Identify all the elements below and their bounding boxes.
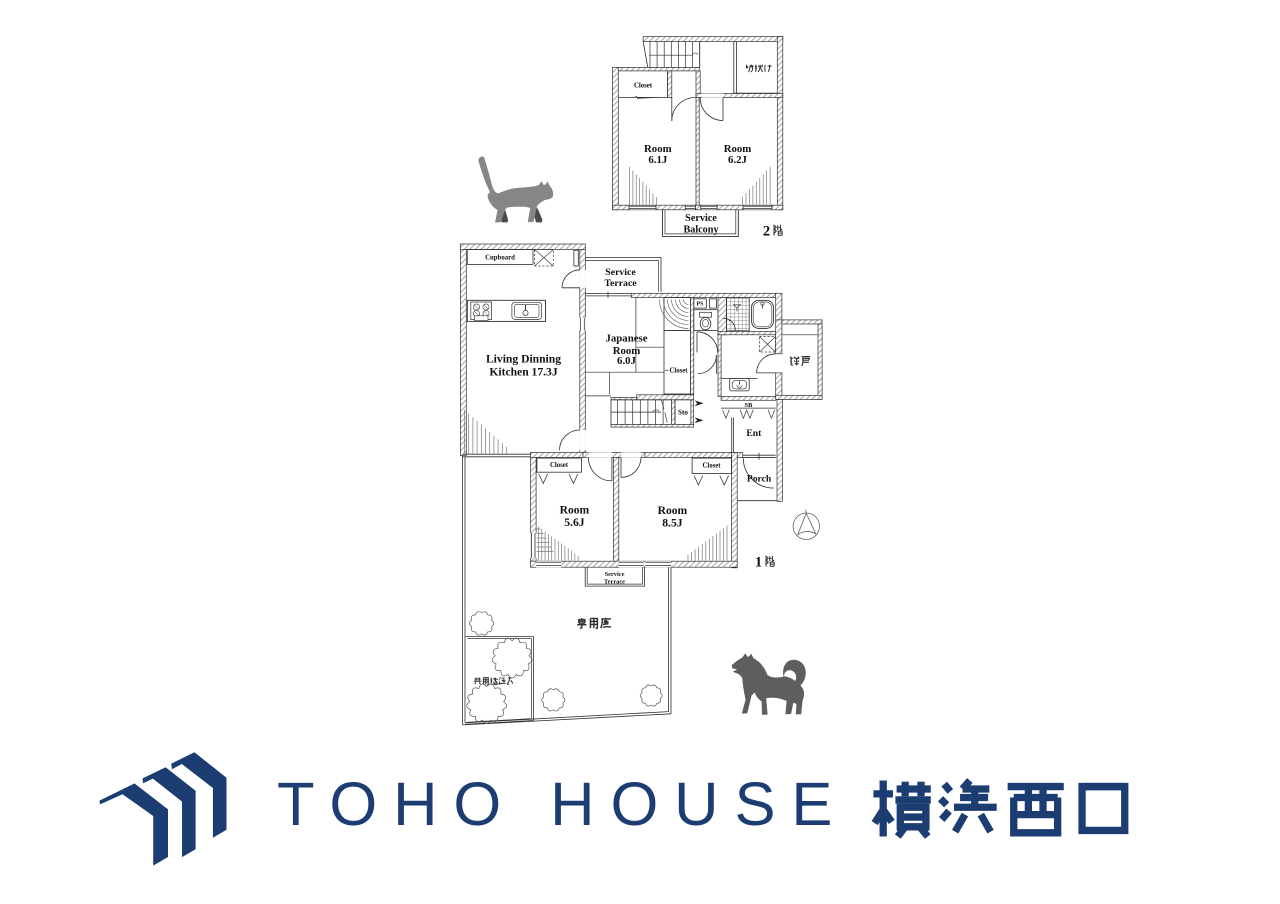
svg-text:TOHO HOUSE: TOHO HOUSE — [277, 770, 848, 839]
svg-text:8.5J: 8.5J — [662, 516, 682, 529]
svg-text:Ent: Ent — [746, 428, 762, 439]
svg-text:Balcony: Balcony — [683, 225, 718, 236]
svg-text:Room: Room — [560, 504, 590, 517]
svg-text:Terrace: Terrace — [604, 278, 637, 289]
svg-text:Cupboard: Cupboard — [485, 254, 515, 261]
svg-text:SB: SB — [744, 402, 753, 409]
svg-text:6.1J: 6.1J — [648, 154, 667, 166]
svg-text:Living Dinning: Living Dinning — [486, 353, 561, 366]
svg-text:Terrace: Terrace — [604, 578, 625, 585]
svg-text:Closet: Closet — [634, 82, 653, 89]
svg-text:Room: Room — [658, 504, 688, 517]
svg-text:Closet: Closet — [669, 368, 688, 375]
svg-text:Service: Service — [685, 213, 717, 224]
svg-text:Sto: Sto — [678, 408, 688, 416]
svg-text:1: 1 — [755, 555, 762, 571]
svg-text:Closet: Closet — [702, 463, 721, 470]
svg-text:6.0J: 6.0J — [617, 355, 636, 367]
svg-text:6.2J: 6.2J — [728, 154, 747, 166]
svg-text:2: 2 — [763, 224, 770, 240]
svg-text:Japanese: Japanese — [606, 333, 648, 345]
svg-text:Service: Service — [605, 571, 625, 578]
svg-text:Closet: Closet — [550, 462, 569, 469]
svg-text:Kitchen 17.3J: Kitchen 17.3J — [489, 366, 557, 379]
svg-text:Porch: Porch — [747, 474, 772, 485]
svg-text:Service: Service — [605, 267, 636, 278]
svg-text:PS: PS — [696, 302, 704, 308]
svg-text:5.6J: 5.6J — [564, 516, 584, 529]
